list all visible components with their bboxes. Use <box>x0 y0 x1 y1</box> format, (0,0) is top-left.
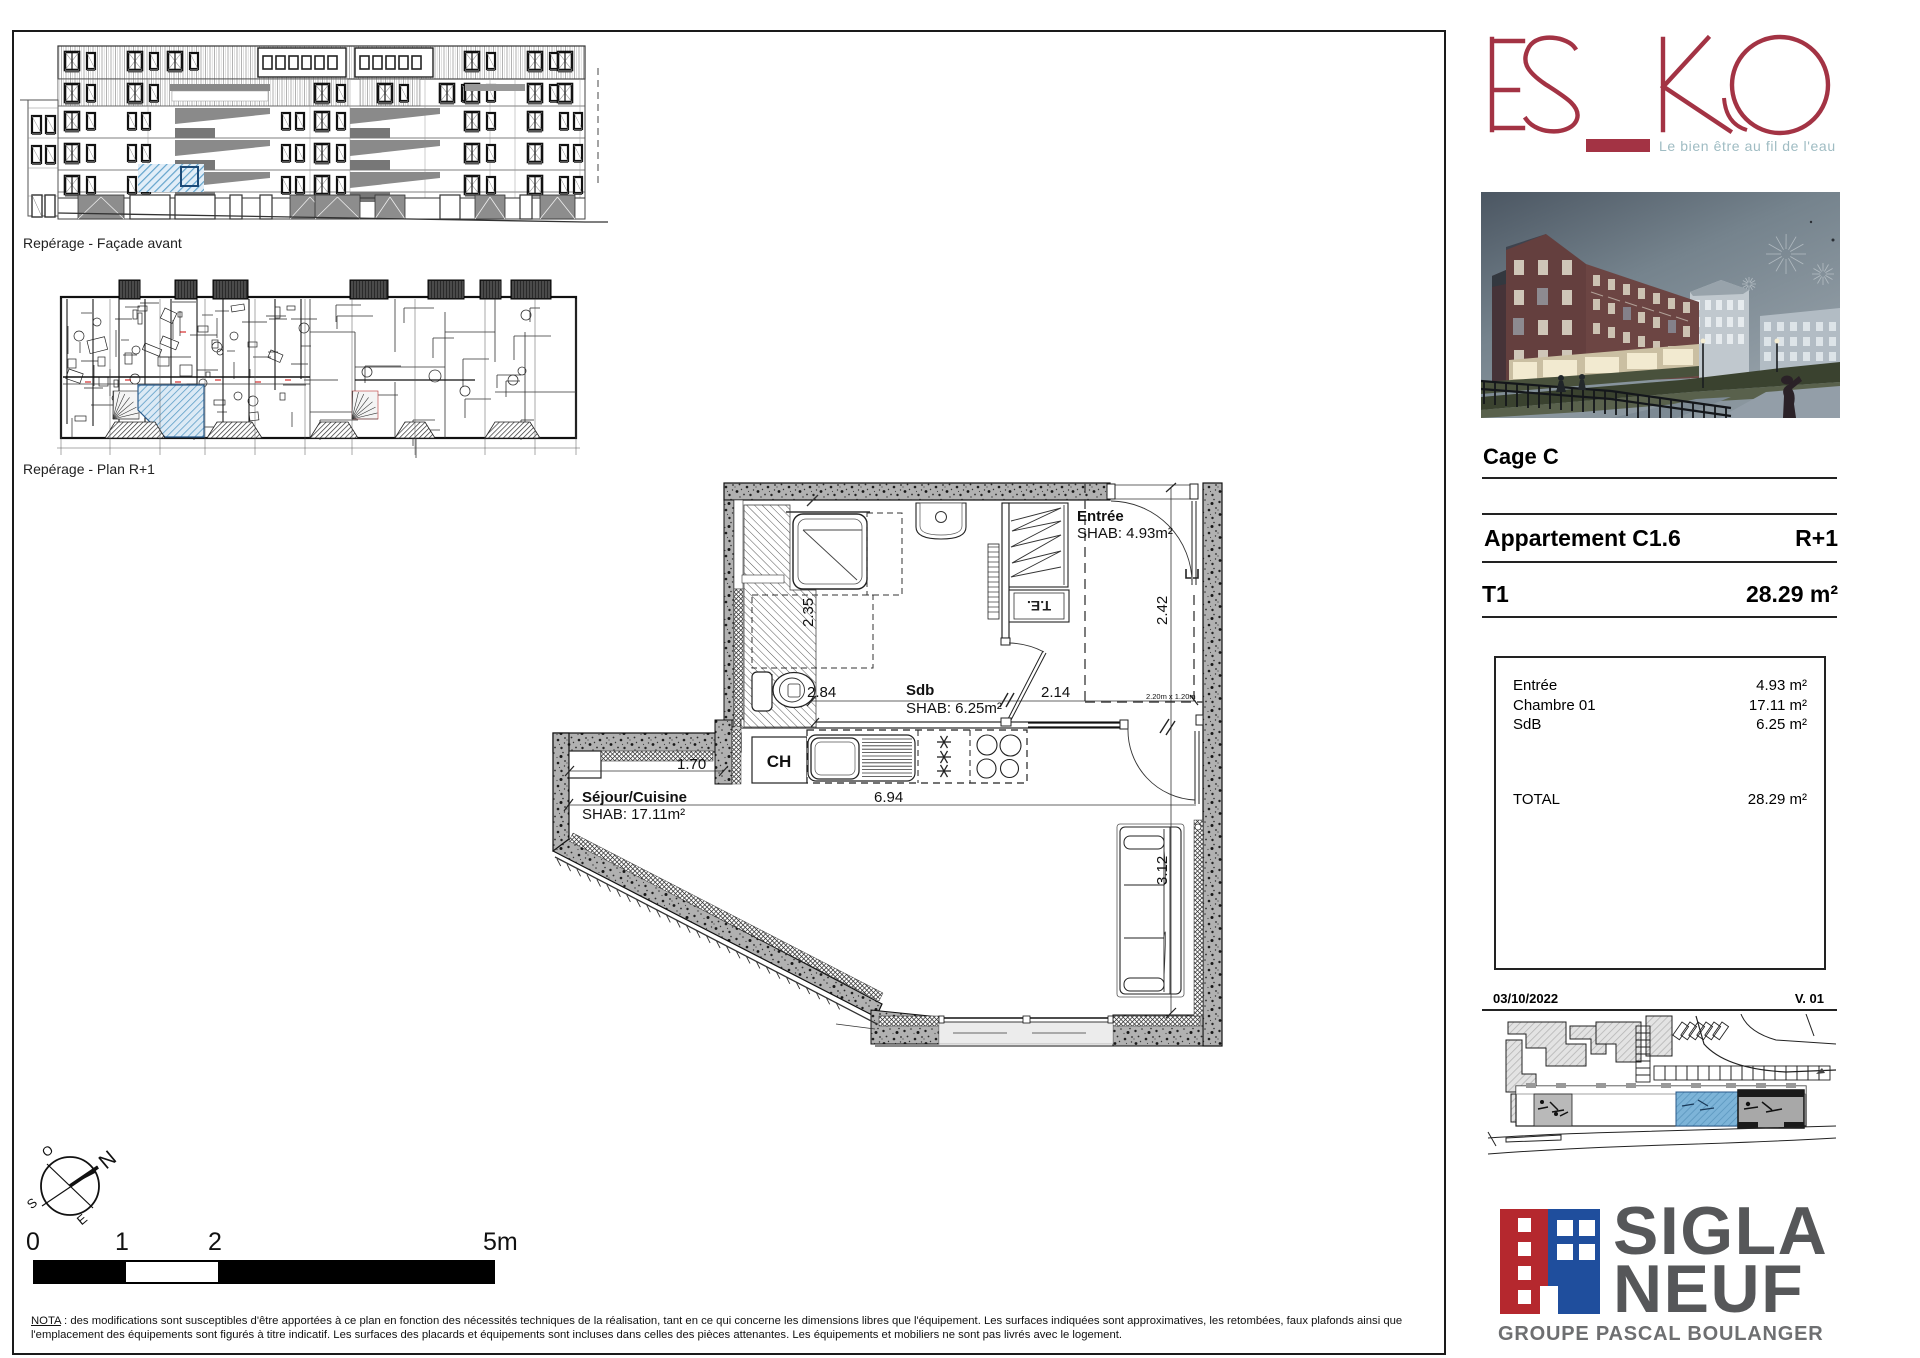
svg-text:2.84: 2.84 <box>807 684 836 701</box>
svg-text:S: S <box>25 1195 40 1212</box>
svg-text:Sdb: Sdb <box>906 682 934 699</box>
svg-text:T.E.: T.E. <box>1027 598 1051 614</box>
svg-text:Le bien être au fil de l'eau: Le bien être au fil de l'eau <box>1659 138 1836 154</box>
svg-text:SHAB: 17.11m²: SHAB: 17.11m² <box>582 806 685 823</box>
svg-text:GROUPE PASCAL BOULANGER: GROUPE PASCAL BOULANGER <box>1498 1323 1823 1345</box>
svg-text:N: N <box>95 1146 121 1173</box>
svg-text:2.35: 2.35 <box>800 598 817 627</box>
svg-text:3.12: 3.12 <box>1154 856 1171 885</box>
svg-text:CH: CH <box>767 752 792 771</box>
svg-text:6.94: 6.94 <box>874 789 903 806</box>
svg-text:Séjour/Cuisine: Séjour/Cuisine <box>582 789 687 806</box>
svg-text:SHAB: 6.25m²: SHAB: 6.25m² <box>906 700 1002 717</box>
svg-text:O: O <box>39 1142 56 1160</box>
svg-text:2.20m x 1.20m: 2.20m x 1.20m <box>1146 692 1196 701</box>
svg-text:E: E <box>74 1211 91 1228</box>
svg-text:Entrée: Entrée <box>1077 508 1124 525</box>
svg-text:NEUF: NEUF <box>1613 1251 1804 1327</box>
svg-text:2.14: 2.14 <box>1041 684 1070 701</box>
svg-text:1.70: 1.70 <box>677 756 706 773</box>
svg-text:SHAB: 4.93m²: SHAB: 4.93m² <box>1077 525 1173 542</box>
svg-text:2.42: 2.42 <box>1154 596 1171 625</box>
